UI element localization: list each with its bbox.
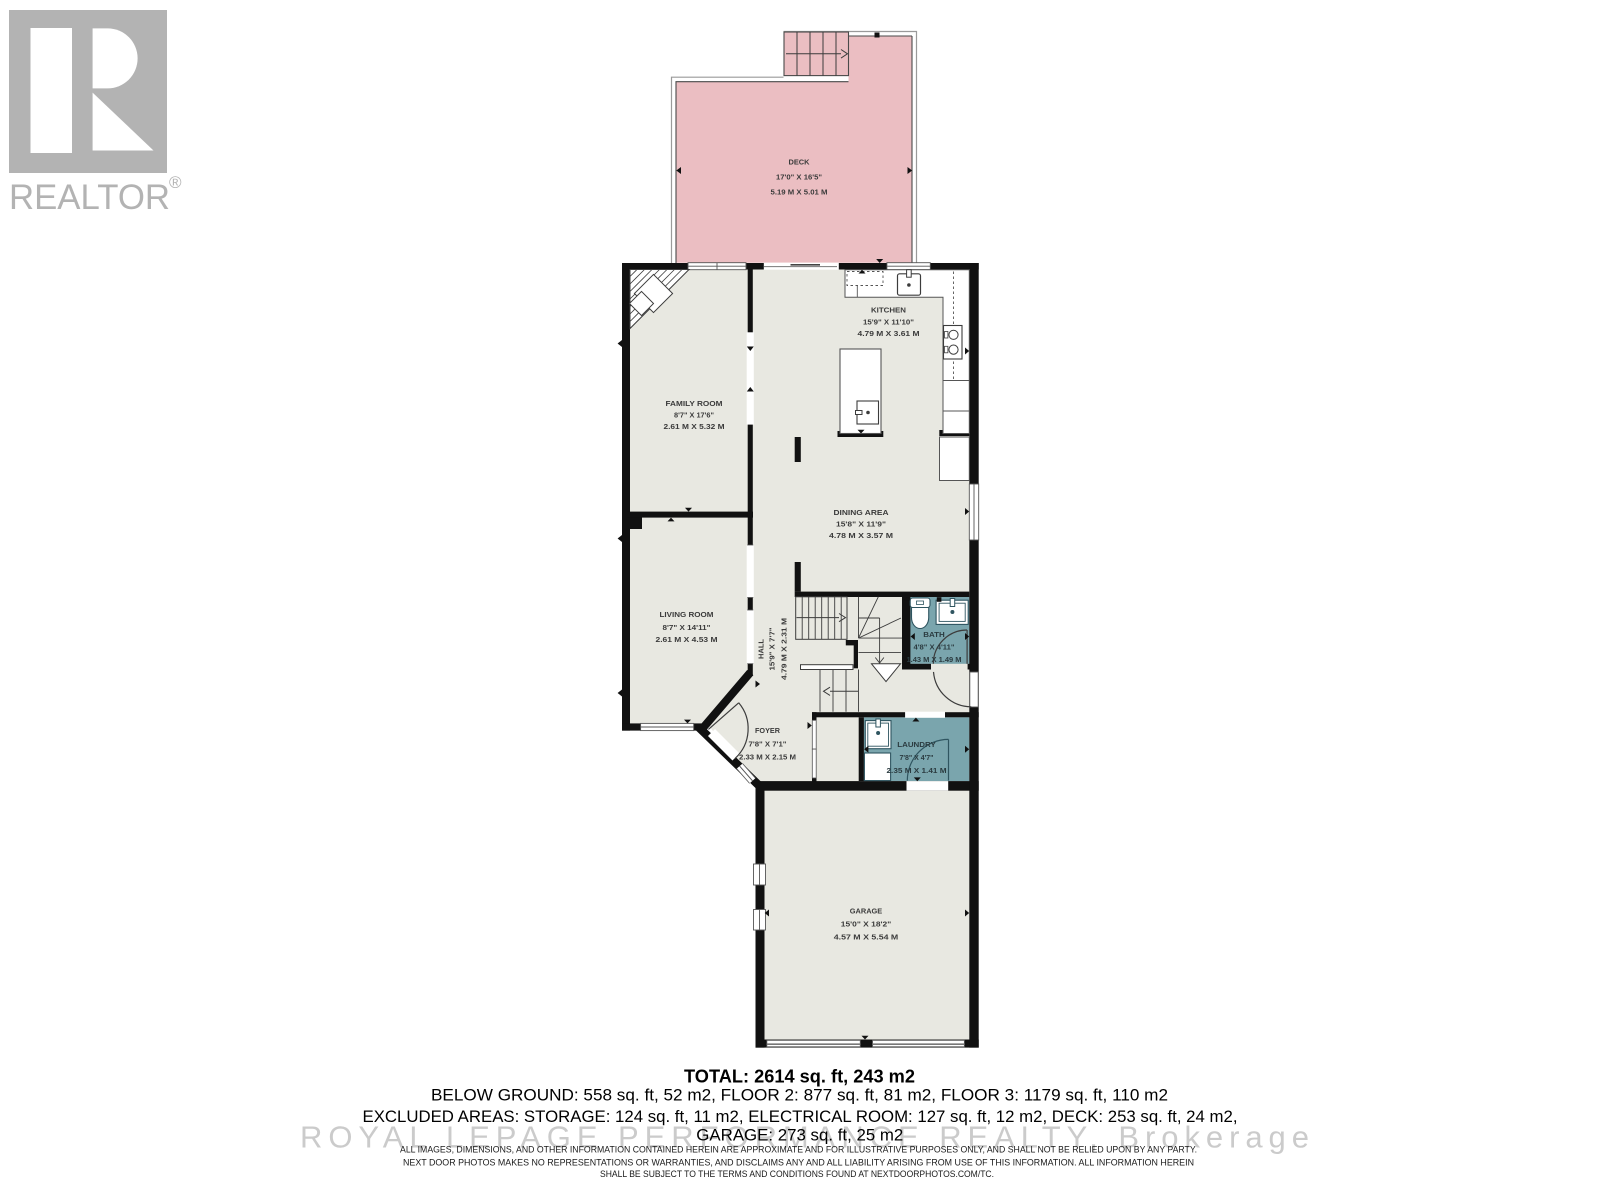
svg-text:®: ® xyxy=(169,173,182,192)
svg-text:DECK: DECK xyxy=(789,158,810,167)
svg-text:LAUNDRY: LAUNDRY xyxy=(897,740,936,749)
svg-text:HALL: HALL xyxy=(757,639,766,659)
svg-text:8'7" X 14'11": 8'7" X 14'11" xyxy=(663,623,712,632)
svg-text:7'8" X 7'1": 7'8" X 7'1" xyxy=(749,740,788,749)
svg-text:KITCHEN: KITCHEN xyxy=(871,306,906,315)
svg-text:15'8" X 11'9": 15'8" X 11'9" xyxy=(836,520,887,529)
svg-text:2.33 M X 2.15 M: 2.33 M X 2.15 M xyxy=(739,753,796,762)
svg-text:17'0" X 16'5": 17'0" X 16'5" xyxy=(776,173,822,182)
svg-text:8'7" X 17'6": 8'7" X 17'6" xyxy=(674,411,714,420)
svg-text:1.43 M X 1.49 M: 1.43 M X 1.49 M xyxy=(907,655,962,664)
svg-text:LIVING ROOM: LIVING ROOM xyxy=(660,610,714,619)
svg-text:FOYER: FOYER xyxy=(755,726,781,735)
svg-text:15'9" X 11'10": 15'9" X 11'10" xyxy=(863,318,915,327)
svg-text:FAMILY ROOM: FAMILY ROOM xyxy=(666,399,723,408)
svg-text:GARAGE: 273 sq. ft, 25 m2: GARAGE: 273 sq. ft, 25 m2 xyxy=(696,1126,903,1145)
svg-text:4.57 M X 5.54 M: 4.57 M X 5.54 M xyxy=(834,933,899,942)
svg-text:15'9" X 7'7": 15'9" X 7'7" xyxy=(768,627,777,671)
svg-text:4.79 M X 3.61 M: 4.79 M X 3.61 M xyxy=(858,329,920,338)
svg-text:DINING AREA: DINING AREA xyxy=(834,508,890,517)
svg-text:SHALL BE SUBJECT TO THE TERMS: SHALL BE SUBJECT TO THE TERMS AND CONDIT… xyxy=(600,1169,994,1179)
svg-text:REALTOR: REALTOR xyxy=(9,178,170,217)
svg-text:TOTAL: 2614 sq. ft, 243 m2: TOTAL: 2614 sq. ft, 243 m2 xyxy=(684,1066,915,1087)
svg-text:ALL IMAGES, DIMENSIONS, AND OT: ALL IMAGES, DIMENSIONS, AND OTHER INFORM… xyxy=(400,1145,1197,1155)
svg-text:BELOW GROUND: 558 sq. ft, 52 m: BELOW GROUND: 558 sq. ft, 52 m2, FLOOR 2… xyxy=(431,1086,1168,1105)
svg-text:15'0" X 18'2": 15'0" X 18'2" xyxy=(841,920,892,929)
svg-text:GARAGE: GARAGE xyxy=(850,907,883,916)
svg-text:7'8" X 4'7": 7'8" X 4'7" xyxy=(900,753,934,762)
svg-text:NEXT DOOR PHOTOS MAKES NO REPR: NEXT DOOR PHOTOS MAKES NO REPRESENTATION… xyxy=(403,1158,1194,1168)
svg-text:4'8" X 4'11": 4'8" X 4'11" xyxy=(914,643,955,652)
svg-text:5.19 M X 5.01 M: 5.19 M X 5.01 M xyxy=(771,188,828,197)
svg-text:4.79 M X 2.31 M: 4.79 M X 2.31 M xyxy=(780,618,789,680)
svg-text:2.61 M X 4.53 M: 2.61 M X 4.53 M xyxy=(656,635,718,644)
svg-text:2.61 M X 5.32 M: 2.61 M X 5.32 M xyxy=(664,422,725,431)
svg-text:4.78 M X 3.57 M: 4.78 M X 3.57 M xyxy=(829,531,893,540)
svg-text:BATH: BATH xyxy=(923,630,945,639)
svg-text:2.35 M X 1.41 M: 2.35 M X 1.41 M xyxy=(887,766,947,775)
